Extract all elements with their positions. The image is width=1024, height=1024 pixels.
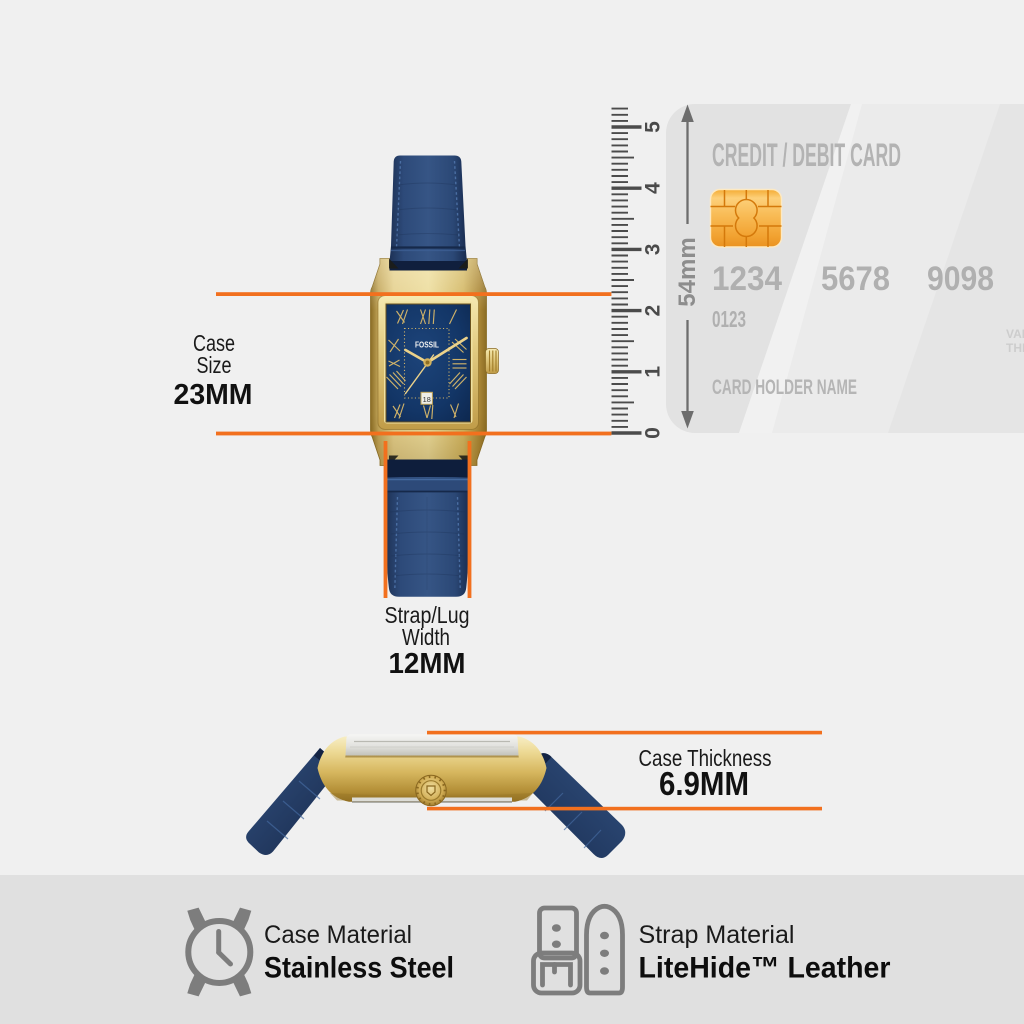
svg-text:VALID: VALID [1006, 327, 1024, 341]
svg-text:Stainless Steel: Stainless Steel [264, 952, 454, 985]
svg-text:5678: 5678 [821, 260, 890, 298]
svg-text:1234: 1234 [712, 260, 782, 298]
svg-text:9098: 9098 [927, 260, 994, 298]
svg-text:Strap Material: Strap Material [639, 921, 795, 949]
svg-text:3: 3 [642, 244, 665, 256]
svg-text:1: 1 [642, 366, 665, 378]
svg-text:LiteHide™ Leather: LiteHide™ Leather [639, 952, 891, 985]
svg-text:Size: Size [197, 352, 232, 378]
svg-text:FOSSIL: FOSSIL [415, 340, 439, 350]
svg-text:Case Material: Case Material [264, 921, 412, 949]
svg-text:12MM: 12MM [389, 648, 466, 680]
svg-text:4: 4 [642, 182, 665, 194]
svg-text:Width: Width [402, 624, 450, 650]
svg-text:CREDIT / DEBIT CARD: CREDIT / DEBIT CARD [712, 137, 901, 173]
svg-text:54mm: 54mm [674, 237, 701, 306]
svg-text:18: 18 [423, 395, 431, 404]
svg-text:THRU: THRU [1006, 341, 1024, 355]
svg-text:2: 2 [642, 305, 665, 317]
svg-text:5: 5 [642, 121, 665, 133]
svg-text:0123: 0123 [712, 306, 746, 332]
svg-text:23MM: 23MM [174, 379, 253, 411]
svg-text:CARD HOLDER NAME: CARD HOLDER NAME [712, 376, 857, 399]
svg-text:6.9MM: 6.9MM [659, 765, 749, 802]
svg-text:0: 0 [642, 427, 665, 439]
